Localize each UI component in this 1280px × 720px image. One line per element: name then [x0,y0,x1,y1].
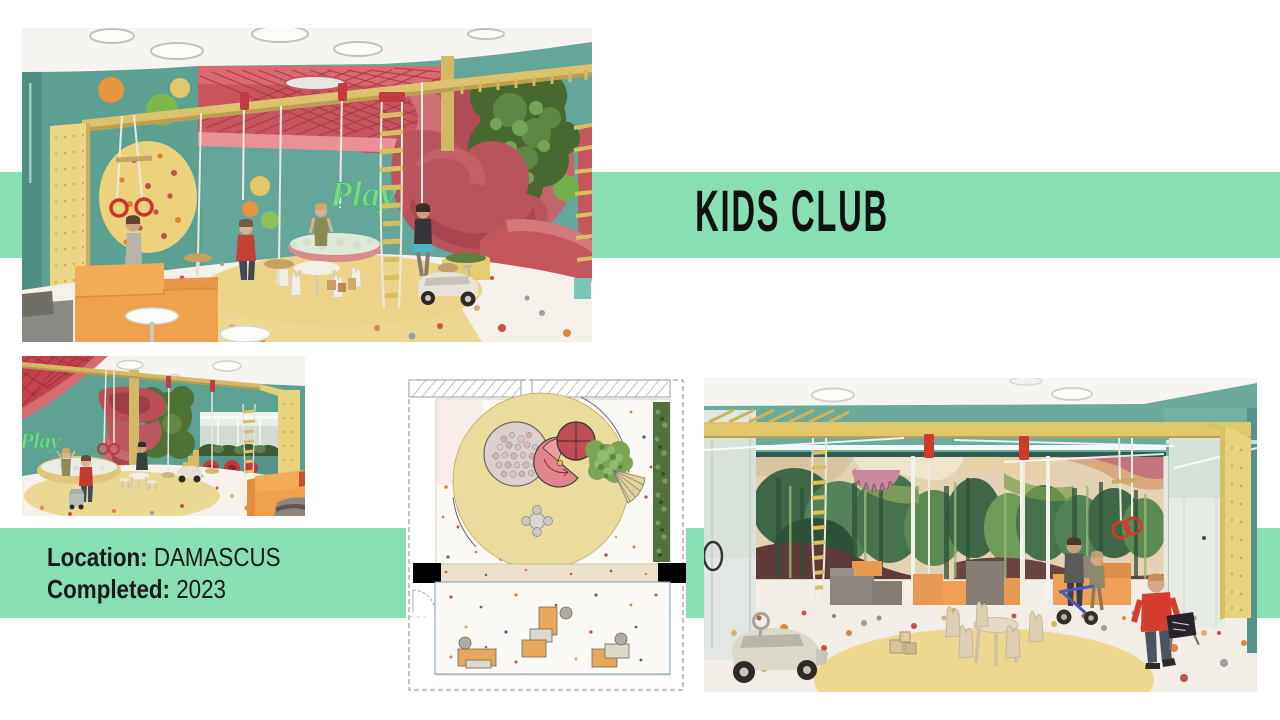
svg-text:Play: Play [22,428,61,453]
